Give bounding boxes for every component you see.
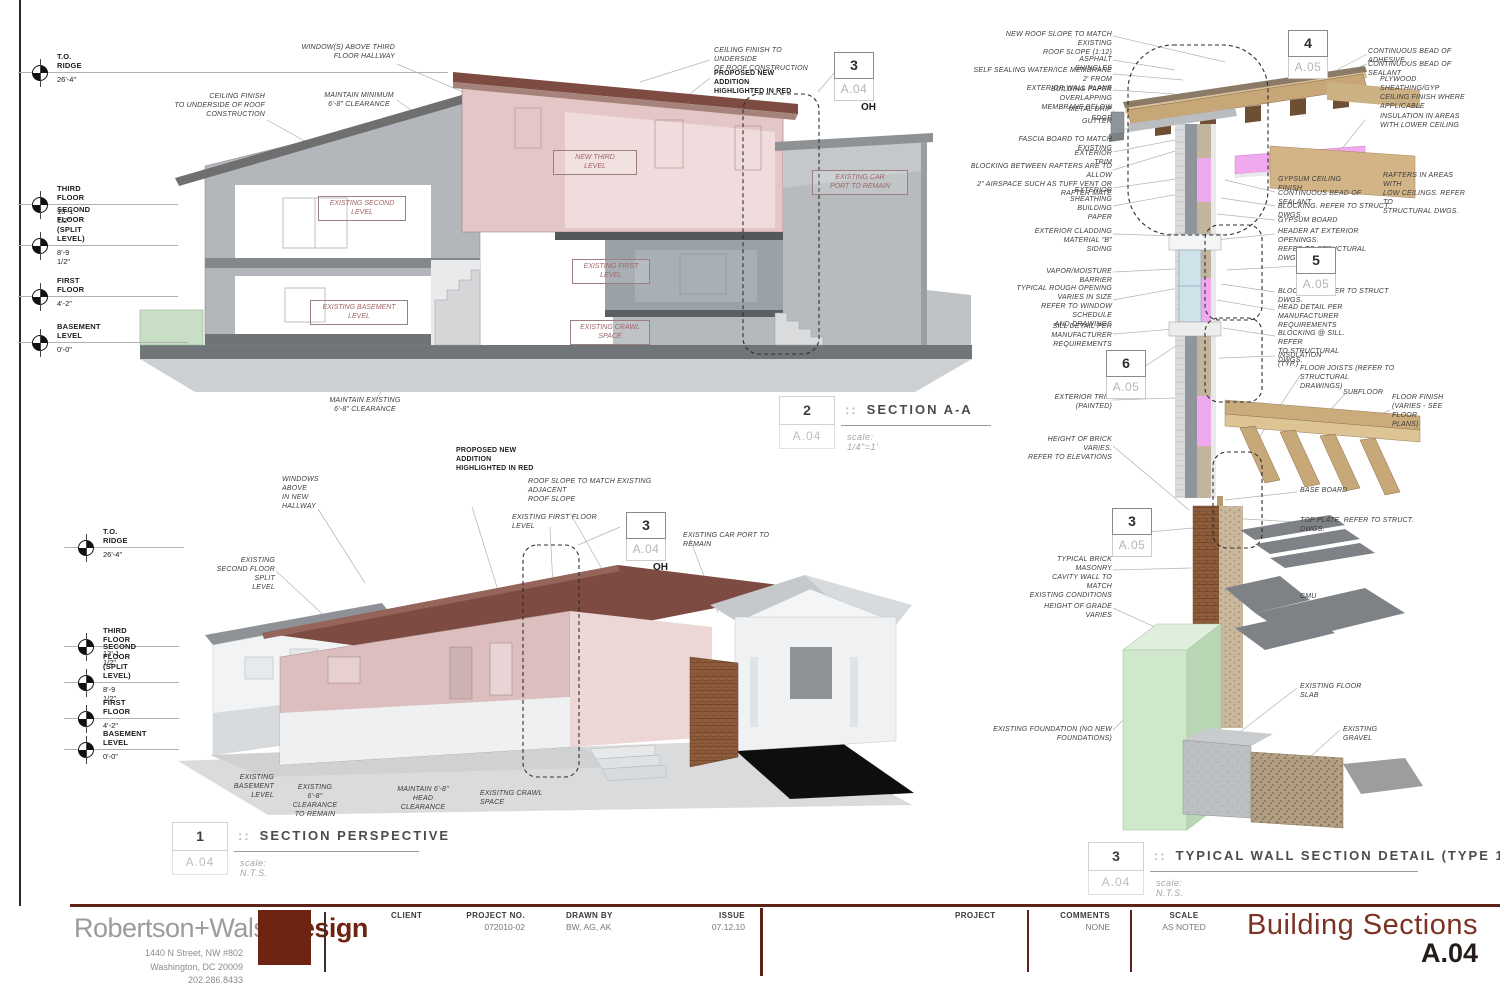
field-client-label: CLIENT (391, 911, 422, 920)
annotation-callout: MAINTAIN 6'-8" HEAD CLEARANCE (393, 785, 453, 812)
detail-marker: 3A.04OH (626, 512, 666, 561)
room-label: EXISTING BASEMENT LEVEL (310, 300, 408, 325)
view-name-text: SECTION PERSPECTIVE (260, 828, 450, 843)
lvl-label: T.O. RIDGE (103, 527, 128, 547)
detail-marker: 3A.05 (1112, 508, 1152, 557)
view-name: ::TYPICAL WALL SECTION DETAIL (TYPE 1) (1154, 848, 1500, 863)
view-title-rule (1150, 871, 1418, 872)
annotation-callout: EXTERIOR SHEATHING (1040, 186, 1112, 204)
detail-marker-sheet: A.04 (626, 539, 666, 561)
datum-icon (78, 639, 94, 655)
firm-phone: 202.286.8433 (75, 974, 243, 988)
field-drawn-by-label: DRAWN BY (566, 911, 613, 920)
lvl-label: BASEMENT LEVEL (103, 729, 147, 749)
view-name-text: SECTION A-A (867, 402, 973, 417)
detail-marker: 5A.05 (1296, 247, 1336, 296)
view-scale: scale: N.T.S. (240, 858, 268, 878)
datum-icon (32, 238, 48, 254)
datum-icon (78, 540, 94, 556)
annotation-callout: SILL DETAIL PER MANUFACTURER REQUIREMENT… (1048, 322, 1112, 349)
detail-marker-number: 4 (1288, 30, 1328, 57)
lvl-label: FIRST FLOOR (57, 276, 84, 296)
firm-address-line1: 1440 N Street, NW #802 (75, 947, 243, 961)
lvl-label: SECOND FLOOR (SPLIT LEVEL) (57, 205, 90, 244)
annotation-callout: EXTERIOR CLADDING MATERIAL "B" SIDING (1000, 227, 1112, 254)
room-label: EXISTING CAR PORT TO REMAIN (812, 170, 908, 195)
annotation-callout: EXISTING SECOND FLOOR SPLIT LEVEL (203, 556, 275, 592)
firm-address: 1440 N Street, NW #802 Washington, DC 20… (75, 947, 243, 988)
view-name: ::SECTION A-A (845, 402, 973, 417)
datum-icon (32, 65, 48, 81)
detail-marker-number: 3 (834, 52, 874, 79)
view-number: 1 (172, 822, 228, 851)
datum-icon (78, 675, 94, 691)
detail-marker: 6A.05 (1106, 350, 1146, 399)
annotation-callout: CEILING FINISH TO UNDERSIDE OF ROOF CONS… (173, 92, 265, 119)
field-drawn-by-value: BW, AG, AK (566, 922, 613, 932)
view-scale: scale: N.T.S. (1156, 878, 1184, 898)
firm-name-gray: Robertson+Walsh (74, 913, 281, 943)
detail-marker-sheet: A.05 (1106, 377, 1146, 399)
annotation-callout: MAINTAIN EXISTING 6'-8" CLEARANCE (328, 396, 402, 414)
field-client: CLIENT (391, 911, 422, 920)
annotation-callout: INSULATION IN AREAS WITH LOWER CEILING (1380, 112, 1462, 130)
titleblock-divider (760, 908, 763, 976)
titleblock-divider (324, 912, 326, 972)
annotation-callout: BUILDING PAPER (1056, 204, 1112, 222)
firm-logo-mark (258, 910, 311, 965)
annotation-callout: PROPOSED NEW ADDITION HIGHLIGHTED IN RED (714, 69, 806, 96)
room-label: NEW THIRD LEVEL (553, 150, 637, 175)
datum-icon (32, 335, 48, 351)
annotation-callout: EXISTING FLOOR SLAB (1300, 682, 1374, 700)
annotation-callout: EXISITNG CRAWL SPACE (480, 789, 556, 807)
detail-marker: 4A.05 (1288, 30, 1328, 79)
annotation-callout: WINDOWS ABOVE IN NEW HALLWAY (282, 475, 344, 511)
room-label: EXISTING SECOND LEVEL (318, 196, 406, 221)
detail-marker-sheet: A.04 (834, 79, 874, 101)
view-sheet-ref: A.04 (779, 425, 835, 449)
annotation-callout: NEW ROOF SLOPE TO MATCH EXISTING ROOF SL… (992, 30, 1112, 57)
annotation-callout: GUTTER (1070, 117, 1112, 126)
view-title-section-perspective: 1 A.04 ::SECTION PERSPECTIVE scale: N.T.… (172, 822, 228, 875)
annotation-callout: GYPSUM BOARD (1278, 216, 1338, 225)
detail-marker-number: 3 (1112, 508, 1152, 535)
datum-icon (78, 742, 94, 758)
detail-marker-number: 5 (1296, 247, 1336, 274)
field-issue: ISSUE 07.12.10 (690, 911, 745, 932)
field-issue-value: 07.12.10 (690, 922, 745, 932)
datum-icon (32, 197, 48, 213)
view-title-wall-section: 3 A.04 ::TYPICAL WALL SECTION DETAIL (TY… (1088, 842, 1144, 895)
annotation-callout: HEIGHT OF BRICK VARIES. REFER TO ELEVATI… (1026, 435, 1112, 462)
detail-marker-sub: OH (653, 562, 668, 573)
drawing-sheet: 2 A.04 ::SECTION A-A scale: 1/4"=1' 1 A.… (0, 0, 1500, 995)
annotation-callout: EXISTING CAR PORT TO REMAIN (683, 531, 781, 549)
annotation-callout: WINDOW(S) ABOVE THIRD FLOOR HALLWAY (300, 43, 395, 61)
view-title-section-aa: 2 A.04 ::SECTION A-A scale: 1/4"=1' (779, 396, 835, 449)
annotation-callout: ROOF SLOPE TO MATCH EXISTING ADJACENT RO… (528, 477, 668, 504)
lvl-label: FIRST FLOOR (103, 698, 130, 718)
detail-marker: 3A.04OH (834, 52, 874, 101)
view-sheet-ref: A.04 (172, 851, 228, 875)
field-project-label: PROJECT (955, 911, 996, 920)
view-title-rule (234, 851, 419, 852)
annotation-callout: HEIGHT OF GRADE VARIES (1024, 602, 1112, 620)
annotation-callout: EXISTING BASEMENT LEVEL (208, 773, 274, 800)
lvl-elev: 0'-0" (103, 752, 118, 761)
annotation-callout: VAPOR/MOISTURE BARRIER (1024, 267, 1112, 285)
view-name-text: TYPICAL WALL SECTION DETAIL (TYPE 1) (1176, 848, 1500, 863)
annotation-callout: EXTERIOR TRIM (PAINTED) (1026, 393, 1112, 411)
annotation-callout: CMU (1300, 592, 1326, 601)
detail-marker-sheet: A.05 (1288, 57, 1328, 79)
view-sheet-ref: A.04 (1088, 871, 1144, 895)
field-project-no: PROJECT NO. 072010-02 (430, 911, 525, 932)
lvl-elev: 8'-9 1/2" (57, 248, 70, 266)
annotation-callout: TOP PLATE. REFER TO STRUCT. DWGS. (1300, 516, 1418, 534)
lvl-elev: 26'-4" (57, 75, 76, 84)
field-project: PROJECT (955, 911, 996, 920)
annotation-callout: EXISTING FIRST FLOOR LEVEL (512, 513, 604, 531)
sheet-number: A.04 (1000, 938, 1478, 969)
titleblock-top-rule (70, 904, 1500, 907)
field-project-no-value: 072010-02 (430, 922, 525, 932)
annotation-callout: HEAD DETAIL PER MANUFACTURER REQUIREMENT… (1278, 303, 1386, 330)
annotation-callout: TYPICAL BRICK MASONRY CAVITY WALL TO MAT… (1026, 555, 1112, 600)
wall-section-drawing (1075, 28, 1490, 853)
annotation-callout: EXISTING FOUNDATION (NO NEW FOUNDATIONS) (962, 725, 1112, 743)
lvl-elev: 0'-0" (57, 345, 72, 354)
detail-marker-sheet: A.05 (1296, 274, 1336, 296)
lvl-line (18, 72, 448, 73)
annotation-callout: FLOOR FINISH (VARIES - SEE FLOOR PLANS) (1392, 393, 1464, 429)
annotation-callout: EXISTING 6'-8" CLEARANCE TO REMAIN (292, 783, 338, 819)
sheet-border-left (19, 0, 21, 906)
field-issue-label: ISSUE (690, 911, 745, 920)
detail-marker-sheet: A.05 (1112, 535, 1152, 557)
view-scale: scale: 1/4"=1' (847, 432, 878, 452)
lvl-elev: 26'-4" (103, 550, 122, 559)
annotation-callout: BASE BOARD (1300, 486, 1348, 495)
detail-marker-number: 3 (626, 512, 666, 539)
datum-icon (78, 711, 94, 727)
firm-address-line2: Washington, DC 20009 (75, 961, 243, 975)
lvl-label: SECOND FLOOR (SPLIT LEVEL) (103, 642, 136, 681)
lvl-label: BASEMENT LEVEL (57, 322, 101, 342)
annotation-callout: PROPOSED NEW ADDITION HIGHLIGHTED IN RED (456, 446, 548, 473)
view-number: 3 (1088, 842, 1144, 871)
lvl-label: THIRD FLOOR (57, 184, 84, 204)
view-title-rule (841, 425, 991, 426)
annotation-callout: EXISTING GRAVEL (1343, 725, 1407, 743)
datum-icon (32, 289, 48, 305)
annotation-callout: MAINTAIN MINIMUM 6'-8" CLEARANCE (320, 91, 398, 109)
view-number: 2 (779, 396, 835, 425)
field-drawn-by: DRAWN BY BW, AG, AK (566, 911, 613, 932)
detail-marker-sub: OH (861, 102, 876, 113)
room-label: EXISTING FIRST LEVEL (572, 259, 650, 284)
annotation-callout: PLYWOOD SHEATHING/GYP CEILING FINISH WHE… (1380, 75, 1472, 111)
room-label: EXISTING CRAWL SPACE (570, 320, 650, 345)
lvl-label: T.O. RIDGE (57, 52, 82, 72)
lvl-elev: 4'-2" (57, 299, 72, 308)
detail-marker-number: 6 (1106, 350, 1146, 377)
annotation-callout: SUBFLOOR (1343, 388, 1385, 397)
view-name: ::SECTION PERSPECTIVE (238, 828, 450, 843)
field-project-no-label: PROJECT NO. (430, 911, 525, 920)
